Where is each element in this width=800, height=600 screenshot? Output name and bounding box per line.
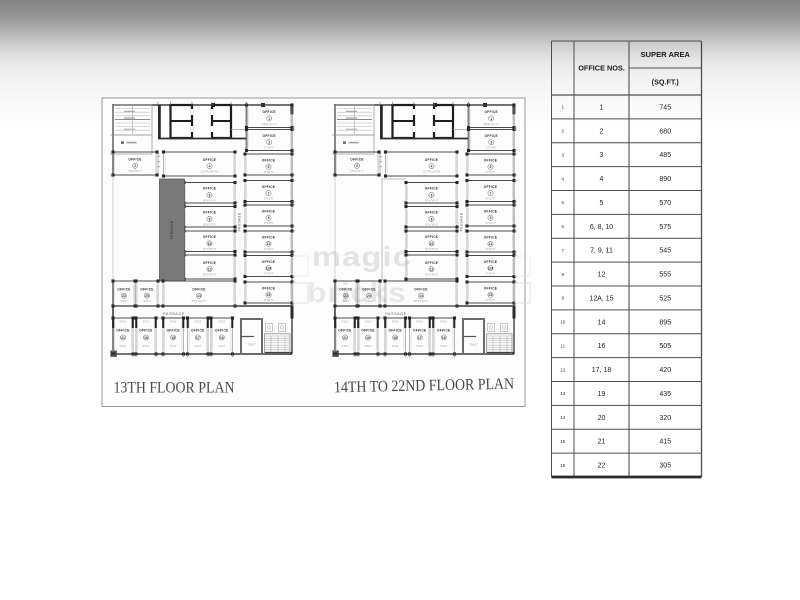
- svg-text:OFFICE: OFFICE: [191, 329, 205, 333]
- svg-text:WIDE (17′-7″): WIDE (17′-7″): [261, 122, 277, 126]
- svg-text:OFFICE: OFFICE: [425, 187, 439, 191]
- svg-text:19′-6″X9′-0″: 19′-6″X9′-0″: [203, 222, 217, 226]
- svg-text:OFFICE NOS.: OFFICE NOS.: [578, 64, 625, 73]
- svg-text:OFFICE: OFFICE: [413, 329, 427, 333]
- svg-text:17′X9′-6″: 17′X9′-6″: [486, 146, 496, 150]
- svg-text:570: 570: [659, 200, 671, 207]
- svg-text:OFFICE: OFFICE: [167, 329, 181, 333]
- svg-text:PASSAGE: PASSAGE: [237, 212, 241, 231]
- svg-text:20: 20: [598, 415, 606, 422]
- svg-text:895: 895: [659, 319, 671, 326]
- svg-text:415: 415: [659, 439, 671, 446]
- svg-text:OFFICE: OFFICE: [128, 157, 142, 161]
- svg-text:12A, 15: 12A, 15: [589, 295, 613, 302]
- svg-text:17′X9′-0″: 17′X9′-0″: [263, 272, 273, 276]
- svg-text:3: 3: [490, 141, 492, 145]
- svg-text:5: 5: [600, 200, 604, 207]
- svg-text:OFFICE: OFFICE: [484, 158, 498, 162]
- svg-text:17′X9′-0″: 17′X9′-0″: [263, 221, 273, 225]
- svg-text:545: 545: [659, 248, 671, 255]
- svg-text:20: 20: [145, 294, 149, 298]
- svg-text:8: 8: [209, 217, 211, 221]
- svg-text:CO FFC(W-45): CO FFC(W-45): [201, 170, 219, 174]
- svg-text:17′X9′-0″: 17′X9′-0″: [485, 272, 495, 276]
- svg-text:6: 6: [209, 193, 211, 197]
- svg-text:OFFICE: OFFICE: [203, 187, 217, 191]
- svg-text:9′X13′: 9′X13′: [392, 345, 399, 348]
- svg-text:PASSAGE: PASSAGE: [163, 312, 185, 316]
- svg-text:9′X13′: 9′X13′: [170, 345, 177, 348]
- svg-text:TOILET: TOILET: [247, 344, 256, 347]
- svg-text:8: 8: [561, 272, 564, 277]
- svg-text:(SQ.FT.): (SQ.FT.): [652, 78, 680, 87]
- svg-text:9′X13′: 9′X13′: [440, 345, 447, 348]
- svg-text:OFFICE: OFFICE: [117, 287, 131, 291]
- svg-text:17′X9′-0″: 17′X9′-0″: [485, 247, 495, 251]
- svg-text:OFFICE: OFFICE: [484, 235, 498, 239]
- svg-text:7: 7: [490, 192, 492, 196]
- svg-text:17: 17: [418, 336, 422, 340]
- svg-text:15: 15: [489, 293, 493, 297]
- svg-text:OFFICE: OFFICE: [203, 211, 217, 215]
- svg-text:OFFICE: OFFICE: [203, 158, 217, 162]
- svg-text:19′-6″X9′-0″: 19′-6″X9′-0″: [425, 247, 439, 251]
- svg-text:2: 2: [600, 128, 604, 135]
- svg-text:3: 3: [600, 152, 604, 159]
- svg-text:5: 5: [490, 165, 492, 169]
- svg-text:505: 505: [659, 343, 671, 350]
- svg-text:11: 11: [489, 242, 493, 246]
- svg-text:555: 555: [659, 272, 671, 279]
- svg-text:9′X13′: 9′X13′: [342, 345, 349, 348]
- svg-text:22: 22: [122, 294, 126, 298]
- svg-text:21: 21: [121, 336, 125, 340]
- svg-text:9′X13′: 9′X13′: [440, 320, 447, 323]
- svg-text:19′-6″X9′-0″: 19′-6″X9′-0″: [425, 198, 439, 202]
- svg-text:4: 4: [209, 165, 211, 169]
- svg-text:17′X9′-0″: 17′X9′-0″: [263, 247, 273, 251]
- svg-text:OFFICE: OFFICE: [262, 260, 276, 264]
- svg-text:OFFICE: OFFICE: [262, 185, 276, 189]
- svg-text:1: 1: [268, 117, 270, 121]
- svg-text:435: 435: [659, 391, 671, 398]
- svg-text:17′X9′-0″: 17′X9′-0″: [485, 197, 495, 201]
- svg-text:OFFICE: OFFICE: [140, 287, 154, 291]
- svg-text:8: 8: [431, 217, 433, 221]
- svg-text:OFFICE: OFFICE: [484, 185, 498, 189]
- svg-text:2: 2: [134, 164, 136, 168]
- svg-text:TERRACE: TERRACE: [170, 220, 174, 239]
- svg-text:OFFICE: OFFICE: [192, 287, 206, 291]
- svg-text:305: 305: [659, 463, 671, 470]
- svg-text:OFFICE: OFFICE: [263, 110, 277, 114]
- svg-text:19′-6″X9′-0″: 19′-6″X9′-0″: [203, 198, 217, 202]
- svg-text:OFFICE: OFFICE: [425, 211, 439, 215]
- svg-text:15: 15: [267, 293, 271, 297]
- svg-text:12A: 12A: [265, 267, 272, 271]
- svg-text:OFFICE: OFFICE: [414, 287, 428, 291]
- svg-text:17′X9′-0″: 17′X9′-0″: [263, 197, 273, 201]
- svg-text:OFFICE: OFFICE: [262, 209, 276, 213]
- svg-text:OFFICE: OFFICE: [215, 329, 229, 333]
- svg-text:OFFICE: OFFICE: [484, 286, 498, 290]
- svg-text:16: 16: [598, 343, 606, 350]
- svg-text:12: 12: [208, 268, 212, 272]
- svg-text:5: 5: [561, 200, 564, 205]
- svg-text:17′X9′-0″: 17′X9′-0″: [485, 221, 495, 225]
- svg-text:9: 9: [268, 216, 270, 220]
- svg-text:5: 5: [268, 165, 270, 169]
- svg-text:9′X13′: 9′X13′: [143, 320, 150, 323]
- svg-text:1: 1: [600, 104, 604, 111]
- svg-text:680: 680: [659, 128, 671, 135]
- svg-text:19′-6″X9′-0″: 19′-6″X9′-0″: [425, 222, 439, 226]
- svg-text:9′X13′: 9′X13′: [416, 320, 423, 323]
- svg-text:18: 18: [393, 336, 397, 340]
- svg-text:OFFICE: OFFICE: [362, 287, 376, 291]
- svg-text:9′X13′: 9′X13′: [120, 345, 127, 348]
- svg-text:890: 890: [659, 176, 671, 183]
- svg-text:OFFICE: OFFICE: [361, 329, 375, 333]
- svg-text:9′X13′: 9′X13′: [170, 320, 177, 323]
- svg-text:OFFICE: OFFICE: [262, 158, 276, 162]
- svg-text:9′X13′: 9′X13′: [416, 345, 423, 348]
- svg-text:OFFICE: OFFICE: [485, 110, 499, 114]
- svg-text:18′-0″X9′-7″: 18′-0″X9′-7″: [350, 169, 364, 173]
- svg-text:9′X13′: 9′X13′: [143, 345, 150, 348]
- svg-text:7: 7: [268, 192, 270, 196]
- svg-text:PASSAGE: PASSAGE: [385, 312, 407, 316]
- svg-text:OFFICE: OFFICE: [338, 329, 352, 333]
- svg-text:2: 2: [561, 129, 564, 134]
- svg-text:16: 16: [560, 463, 566, 468]
- svg-text:12: 12: [598, 272, 606, 279]
- svg-text:OFFICE: OFFICE: [339, 287, 353, 291]
- svg-text:OFFICE: OFFICE: [203, 261, 217, 265]
- svg-text:18: 18: [171, 336, 175, 340]
- svg-text:9′X13′: 9′X13′: [120, 320, 127, 323]
- svg-text:1: 1: [561, 105, 564, 110]
- svg-text:10: 10: [430, 242, 434, 246]
- svg-text:9′X13′: 9′X13′: [365, 345, 372, 348]
- svg-text:9′X13′: 9′X13′: [392, 320, 399, 323]
- svg-text:OFFICE: OFFICE: [425, 158, 439, 162]
- svg-text:9′X13′: 9′X13′: [194, 345, 201, 348]
- svg-text:9′X12′: 9′X12′: [342, 299, 350, 303]
- svg-text:19′-6″X9′-0″: 19′-6″X9′-0″: [203, 247, 217, 251]
- svg-text:9: 9: [490, 216, 492, 220]
- svg-text:1: 1: [490, 117, 492, 121]
- svg-text:12: 12: [560, 367, 566, 372]
- svg-text:14: 14: [598, 319, 606, 326]
- svg-text:575: 575: [659, 224, 671, 231]
- svg-text:12A: 12A: [487, 267, 494, 271]
- svg-text:9′X13′: 9′X13′: [218, 320, 225, 323]
- svg-text:17: 17: [196, 336, 200, 340]
- svg-text:9′X12′: 9′X12′: [120, 299, 128, 303]
- svg-text:6: 6: [561, 224, 564, 229]
- svg-text:21: 21: [598, 439, 606, 446]
- svg-text:PASSAGE: PASSAGE: [459, 212, 463, 231]
- svg-text:OFFICE: OFFICE: [425, 261, 439, 265]
- svg-text:9: 9: [561, 296, 564, 301]
- svg-text:OFFICE: OFFICE: [484, 260, 498, 264]
- svg-text:745: 745: [659, 104, 671, 111]
- svg-text:OFFICE: OFFICE: [484, 209, 498, 213]
- svg-text:21: 21: [343, 336, 347, 340]
- svg-text:17′X9′-0″: 17′X9′-0″: [263, 170, 273, 174]
- svg-text:WIDE (17′-7″): WIDE (17′-7″): [483, 122, 499, 126]
- svg-text:9′X12′: 9′X12′: [143, 299, 151, 303]
- svg-text:420: 420: [659, 367, 671, 374]
- svg-text:9′X12′: 9′X12′: [365, 299, 373, 303]
- svg-text:12: 12: [430, 268, 434, 272]
- svg-text:14: 14: [560, 415, 566, 420]
- svg-text:2: 2: [356, 164, 358, 168]
- svg-text:OFFICE: OFFICE: [350, 157, 364, 161]
- svg-text:29′-6″X12′-0″: 29′-6″X12′-0″: [192, 299, 207, 303]
- svg-text:16: 16: [442, 336, 446, 340]
- svg-text:13TH FLOOR PLAN: 13TH FLOOR PLAN: [114, 380, 235, 397]
- svg-text:OFFICE: OFFICE: [485, 134, 499, 138]
- svg-text:OFFICE: OFFICE: [437, 329, 451, 333]
- svg-text:14: 14: [419, 294, 423, 298]
- svg-text:17′X9′-0″: 17′X9′-0″: [263, 298, 273, 302]
- svg-text:4: 4: [561, 176, 564, 181]
- svg-text:14: 14: [197, 294, 201, 298]
- svg-text:17′X9′-6″: 17′X9′-6″: [264, 146, 274, 150]
- svg-text:17′X9′-0″: 17′X9′-0″: [485, 170, 495, 174]
- svg-text:4: 4: [431, 165, 433, 169]
- svg-text:9′X13′: 9′X13′: [218, 345, 225, 348]
- svg-text:10: 10: [208, 242, 212, 246]
- svg-text:OFFICE: OFFICE: [425, 235, 439, 239]
- svg-text:17′X9′-0″: 17′X9′-0″: [485, 298, 495, 302]
- svg-text:19: 19: [144, 336, 148, 340]
- svg-text:OFFICE: OFFICE: [203, 235, 217, 239]
- svg-text:485: 485: [659, 152, 671, 159]
- svg-text:9′X13′: 9′X13′: [194, 320, 201, 323]
- svg-text:9′X13′: 9′X13′: [365, 320, 372, 323]
- svg-text:OFFICE: OFFICE: [389, 329, 403, 333]
- svg-text:6, 8, 10: 6, 8, 10: [590, 224, 613, 231]
- svg-text:17, 18: 17, 18: [592, 367, 612, 374]
- svg-text:19: 19: [366, 336, 370, 340]
- svg-text:19′-6″X9′-0″: 19′-6″X9′-0″: [425, 273, 439, 277]
- svg-text:4: 4: [600, 176, 604, 183]
- svg-text:CO FFC(W-45): CO FFC(W-45): [423, 170, 441, 174]
- svg-text:7: 7: [561, 248, 564, 253]
- svg-text:13: 13: [560, 391, 566, 396]
- svg-text:10: 10: [560, 320, 566, 325]
- svg-text:OFFICE: OFFICE: [262, 235, 276, 239]
- svg-text:11: 11: [267, 242, 271, 246]
- svg-text:TOILET: TOILET: [469, 344, 478, 347]
- svg-text:OFFICE: OFFICE: [263, 134, 277, 138]
- svg-text:19: 19: [598, 391, 606, 398]
- svg-text:OFFICE: OFFICE: [139, 329, 153, 333]
- svg-text:22: 22: [344, 294, 348, 298]
- svg-text:3: 3: [561, 152, 564, 157]
- svg-text:22: 22: [598, 463, 606, 470]
- svg-text:9′X13′: 9′X13′: [342, 320, 349, 323]
- svg-text:OFFICE: OFFICE: [262, 286, 276, 290]
- svg-text:525: 525: [659, 295, 671, 302]
- svg-text:SUPER AREA: SUPER AREA: [640, 50, 690, 59]
- svg-text:7, 9, 11: 7, 9, 11: [590, 248, 613, 255]
- svg-text:29′-6″X12′-0″: 29′-6″X12′-0″: [414, 299, 429, 303]
- svg-text:6: 6: [431, 193, 433, 197]
- svg-text:320: 320: [659, 415, 671, 422]
- svg-text:16: 16: [220, 336, 224, 340]
- svg-text:19′-6″X9′-0″: 19′-6″X9′-0″: [203, 273, 217, 277]
- svg-text:18′-0″X9′-7″: 18′-0″X9′-7″: [128, 169, 142, 173]
- svg-text:15: 15: [560, 439, 566, 444]
- svg-text:20: 20: [367, 294, 371, 298]
- svg-text:OFFICE: OFFICE: [116, 329, 130, 333]
- svg-text:3: 3: [268, 141, 270, 145]
- svg-text:11: 11: [560, 343, 565, 348]
- svg-text:magic: magic: [312, 241, 412, 272]
